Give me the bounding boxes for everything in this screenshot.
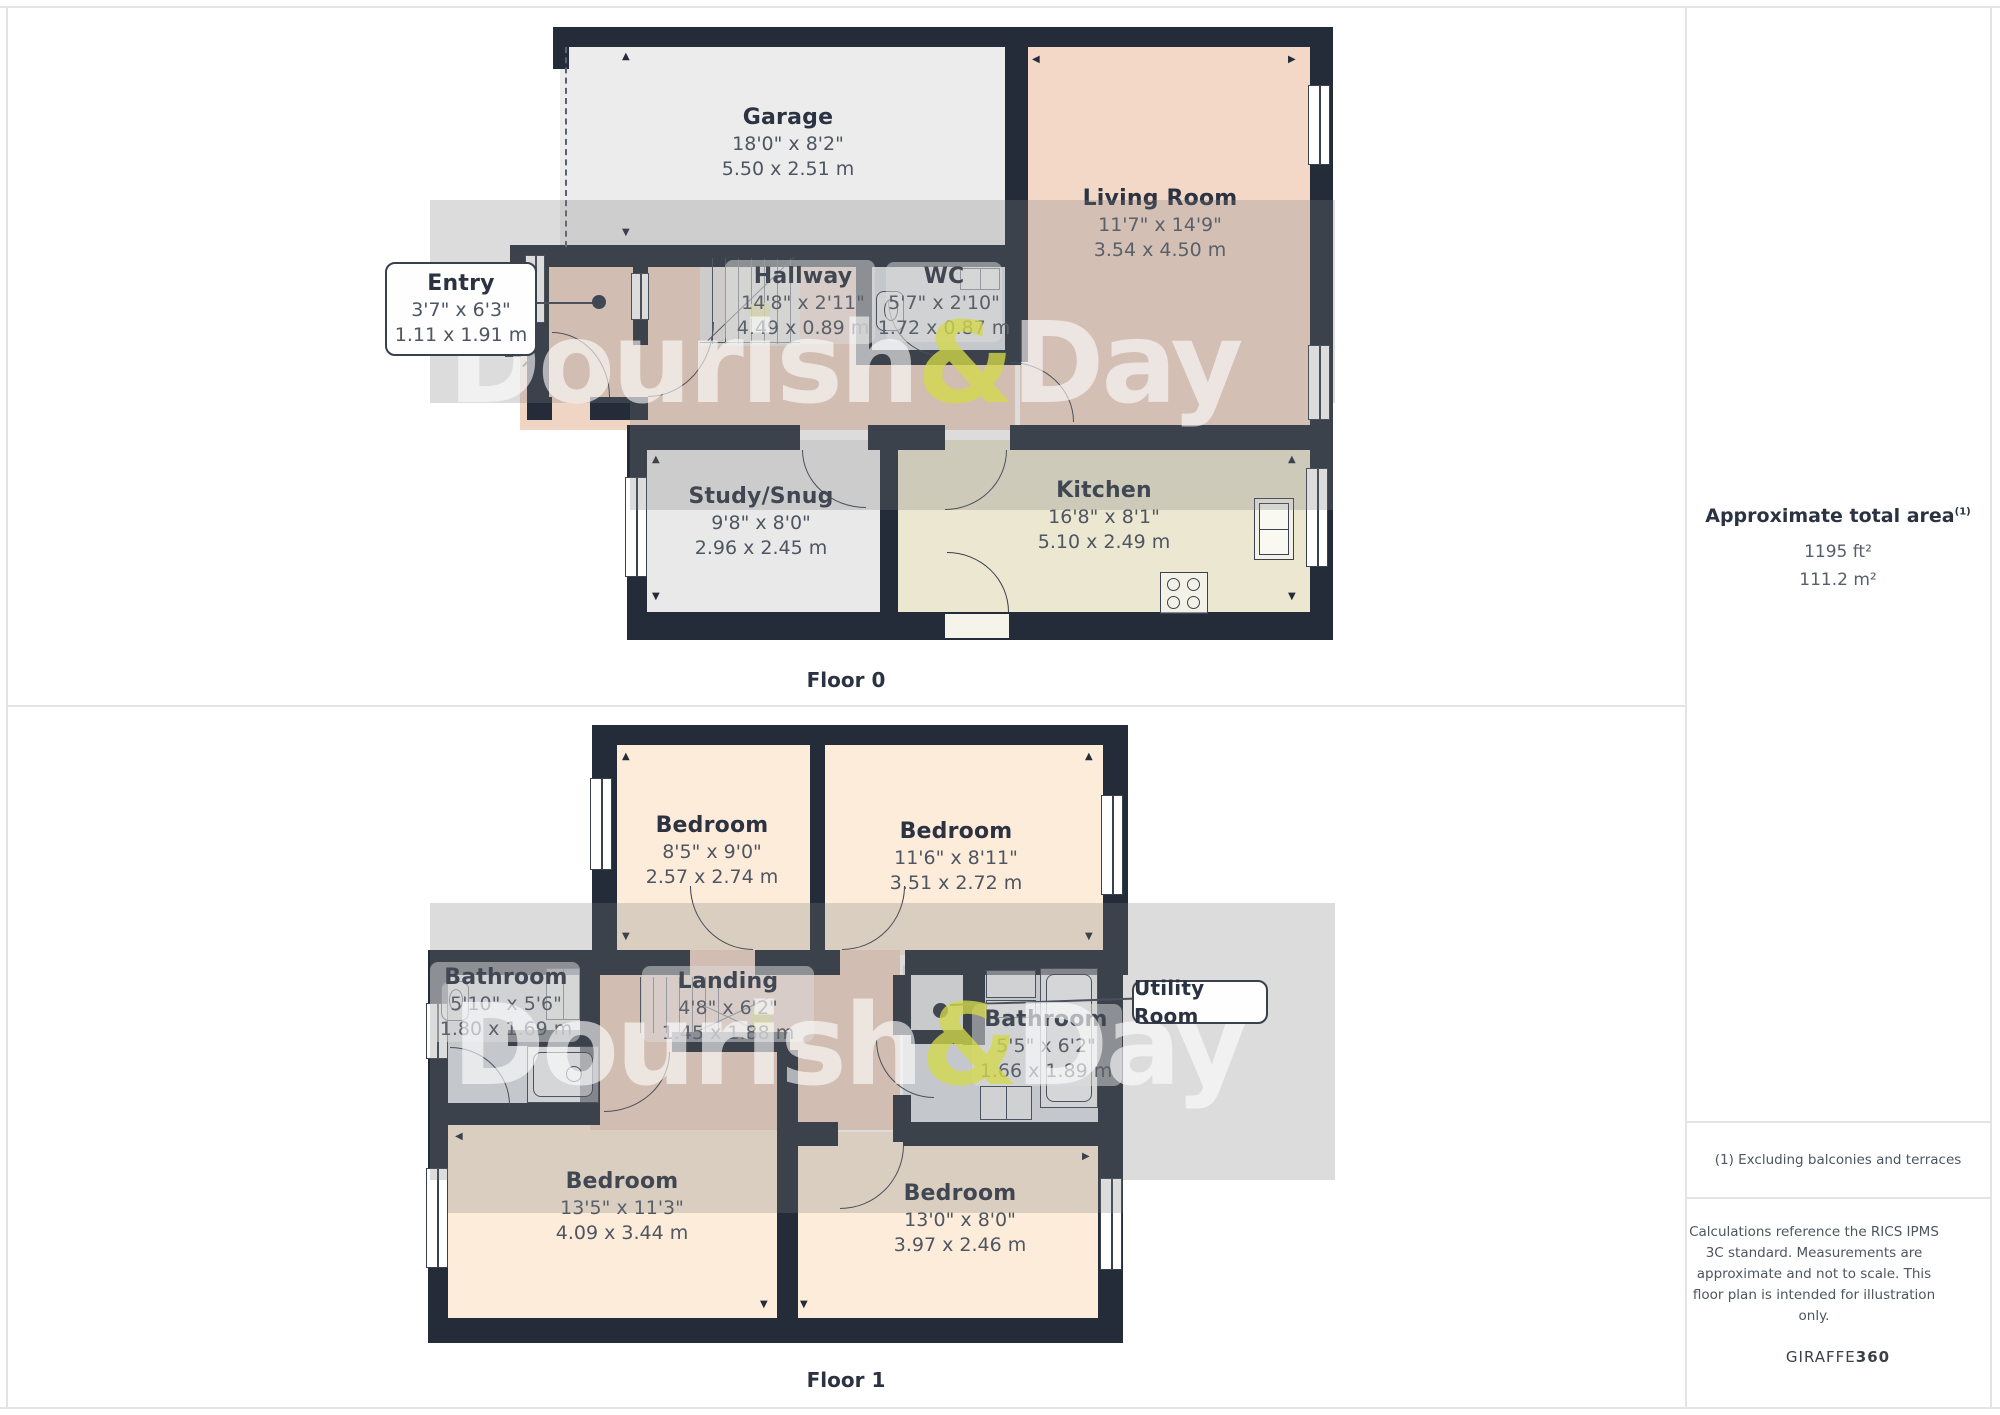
corner-marker: ◀ <box>1032 55 1040 65</box>
frame-border-top <box>0 6 2000 8</box>
watermark-ampersand: & <box>921 981 1016 1111</box>
corner-marker: ▼ <box>652 592 660 602</box>
window <box>1101 795 1123 895</box>
corner-marker: ▼ <box>1288 592 1296 602</box>
floorplan-page: { "floor0": { "label": "Floor 0", "garag… <box>0 0 2000 1415</box>
frame-border-bottom <box>0 1407 2000 1409</box>
kitchen-sink-basin-icon <box>1259 503 1289 555</box>
hob-ring-icon <box>1167 596 1180 609</box>
wall <box>428 1318 1123 1343</box>
wall <box>592 725 1128 745</box>
watermark-band <box>448 1180 1123 1213</box>
hob-ring-icon <box>1167 578 1180 591</box>
footnote: (1) Excluding balconies and terraces <box>1686 1152 1990 1168</box>
wall <box>553 27 1333 47</box>
disclaimer: Calculations reference the RICS IPMS 3C … <box>1686 1222 1942 1327</box>
floor0-caption: Floor 0 <box>807 668 886 692</box>
frame-border-right <box>1990 6 1992 1407</box>
floor-divider <box>6 705 1685 707</box>
corner-marker: ▲ <box>1085 752 1093 762</box>
sidebar-divider-1 <box>1687 1121 1990 1123</box>
watermark-text: Dourish&Day <box>448 308 1240 420</box>
window <box>590 778 612 870</box>
corner-marker: ▲ <box>622 752 630 762</box>
total-area-title: Approximate total area(1) <box>1686 505 1990 527</box>
door-threshold <box>945 614 1009 638</box>
corner-marker: ▼ <box>760 1300 768 1310</box>
room-label-bedroom-tl: Bedroom 8'5" x 9'0" 2.57 x 2.74 m <box>646 812 778 890</box>
window <box>426 1168 448 1268</box>
window <box>1308 85 1330 165</box>
entry-callout: Entry 3'7" x 6'3" 1.11 x 1.91 m <box>385 262 537 356</box>
total-area-ft: 1195 ft² <box>1686 538 1990 566</box>
floor1-caption: Floor 1 <box>807 1368 886 1392</box>
watermark-ampersand: & <box>917 299 1012 429</box>
hob-icon <box>1160 572 1208 614</box>
corner-marker: ▶ <box>1288 55 1296 65</box>
hob-ring-icon <box>1187 578 1200 591</box>
room-label-bedroom-tr: Bedroom 11'6" x 8'11" 3.51 x 2.72 m <box>890 818 1022 896</box>
total-area-m: 111.2 m² <box>1686 566 1990 594</box>
sidebar-divider-2 <box>1687 1197 1990 1199</box>
watermark-text: Dourish&Day <box>452 990 1244 1102</box>
corner-marker: ▼ <box>800 1300 808 1310</box>
footnote-ref: (1) <box>1955 507 1971 518</box>
corner-marker: ▲ <box>622 52 630 62</box>
brand-logo: GIRAFFE360 <box>1686 1348 1990 1366</box>
utility-room-callout: Utility Room <box>1132 980 1268 1024</box>
hob-ring-icon <box>1187 596 1200 609</box>
room-label-garage: Garage 18'0" x 8'2" 5.50 x 2.51 m <box>722 104 854 182</box>
